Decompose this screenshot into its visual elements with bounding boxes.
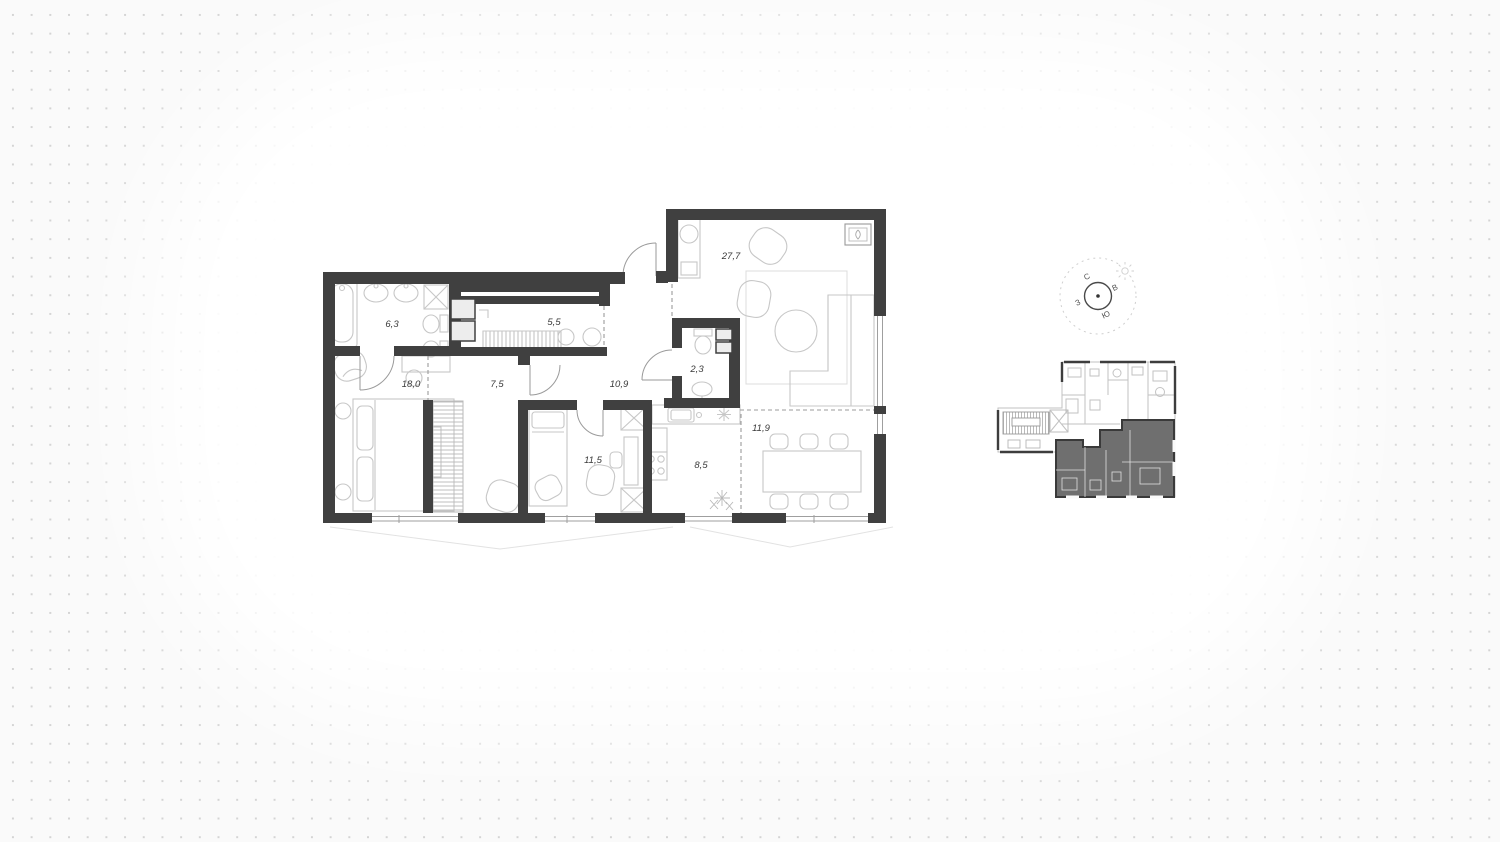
main-apartment-plan: 6,3 5,5 18,0 7,5 10,9 2,3 27,7 11,5 8,5 … [323, 209, 893, 549]
room-area-hall: 7,5 [490, 379, 504, 390]
page: 6,3 5,5 18,0 7,5 10,9 2,3 27,7 11,5 8,5 … [0, 0, 1500, 842]
closet-section [433, 401, 463, 512]
compass-south: Ю [1100, 309, 1111, 321]
fireplace-icon [845, 224, 871, 245]
room-area-bathroom: 6,3 [385, 319, 399, 330]
toilet-icon [694, 329, 712, 354]
furniture-layer [327, 218, 874, 516]
rug [746, 271, 847, 384]
compass-east: В [1111, 283, 1120, 293]
wc-door [642, 350, 672, 380]
compass-west: З [1074, 298, 1082, 308]
room-area-wardrobe: 5,5 [547, 317, 561, 328]
compass: С В Ю З [1060, 258, 1136, 334]
chair [532, 472, 564, 503]
nightstand [335, 484, 351, 500]
mini-floor-plan [998, 362, 1176, 499]
facade-mark [330, 527, 673, 549]
compass-north: С [1082, 271, 1091, 282]
armchair [585, 463, 617, 497]
room-area-kitchen: 8,5 [694, 460, 708, 471]
washing-machine-icon [424, 285, 448, 309]
facade-mark [690, 527, 893, 547]
armchair [744, 223, 792, 270]
mini-furniture [1066, 367, 1167, 413]
mini-plan-selected-unit[interactable] [1056, 420, 1174, 497]
armchair [483, 477, 524, 516]
floor-plan-svg: 6,3 5,5 18,0 7,5 10,9 2,3 27,7 11,5 8,5 … [0, 0, 1500, 842]
wardrobe-rail [479, 310, 601, 349]
entry-door [623, 243, 656, 276]
plant-icon [710, 490, 733, 510]
bedroom2-door [577, 410, 603, 436]
coffee-table [775, 310, 817, 352]
room-area-bedroom-2: 11,5 [584, 455, 603, 466]
room-area-corridor: 10,9 [610, 379, 629, 390]
coat-rack [678, 218, 700, 278]
room-area-wc: 2,3 [689, 364, 704, 375]
sink-icon [364, 284, 418, 302]
room-area-dining: 11,9 [752, 423, 771, 434]
dining-table [763, 451, 861, 492]
room-area-bedroom: 18,0 [402, 379, 421, 390]
hall-door [530, 365, 560, 395]
toilet-icon [423, 315, 448, 333]
room-area-living: 27,7 [721, 251, 741, 262]
nightstand [335, 403, 351, 419]
armchair [735, 278, 773, 319]
